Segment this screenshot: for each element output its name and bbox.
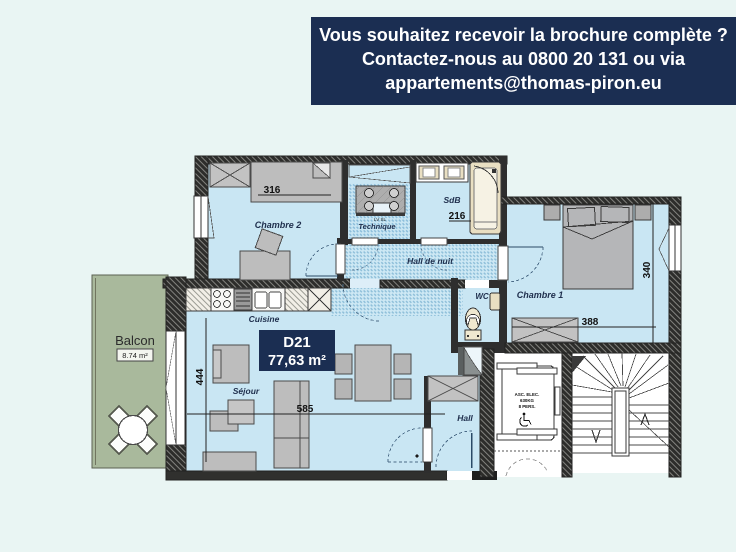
svg-text:Hall: Hall [457,413,473,423]
svg-text:8 PERS.: 8 PERS. [519,404,536,409]
svg-text:D21: D21 [283,334,311,351]
svg-text:585: 585 [297,404,314,415]
svg-text:Hall de nuit: Hall de nuit [407,256,454,266]
svg-text:Séjour: Séjour [233,386,260,396]
svg-text:Technique: Technique [358,222,395,231]
svg-text:ASC. ELEC.: ASC. ELEC. [515,392,540,397]
svg-text:8.74 m²: 8.74 m² [122,351,148,360]
svg-text:WC: WC [475,292,489,301]
svg-text:340: 340 [642,261,653,278]
svg-text:Chambre 1: Chambre 1 [517,290,564,300]
svg-text:388: 388 [582,317,599,328]
svg-text:Chambre 2: Chambre 2 [255,220,302,230]
svg-text:SdB: SdB [444,195,461,205]
svg-text:77,63 m²: 77,63 m² [268,353,326,369]
svg-text:316: 316 [264,185,281,196]
svg-text:630KG: 630KG [520,398,534,403]
svg-text:Cuisine: Cuisine [249,314,280,324]
svg-text:Balcon: Balcon [115,333,155,348]
svg-text:444: 444 [195,368,206,385]
svg-text:216: 216 [449,211,466,222]
